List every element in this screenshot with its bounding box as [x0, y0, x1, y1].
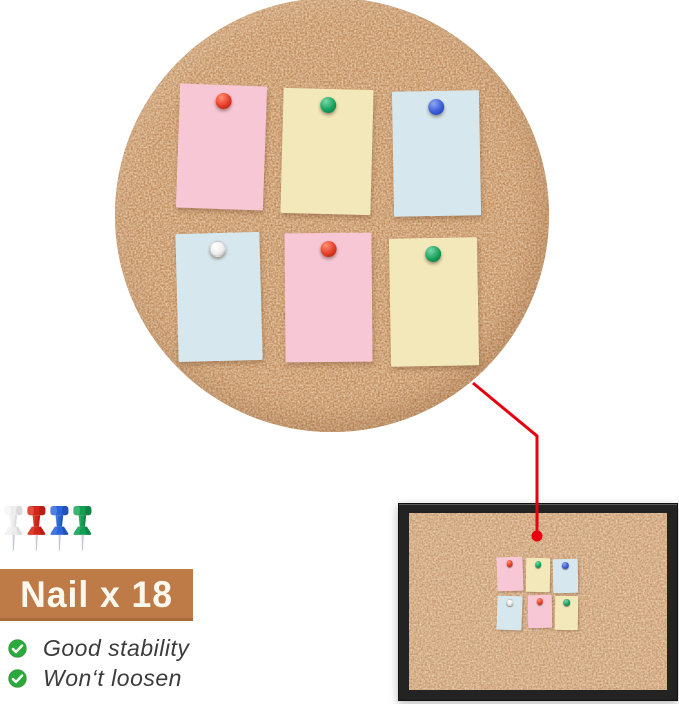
pushpin-green: [320, 97, 336, 113]
board-notes-layer: [409, 513, 667, 690]
pushpin-blue: [428, 99, 444, 115]
sticky-note-blue: [496, 596, 522, 631]
sticky-note-blue: [553, 559, 579, 593]
board-cork-surface: [409, 513, 667, 690]
sticky-note-yellow: [526, 558, 551, 592]
product-image-cork-board: { "banner": { "label": "Nail x 18" }, "c…: [0, 0, 679, 704]
checkmark-icon: [8, 669, 27, 688]
sticky-note-pink: [284, 233, 372, 363]
pushpin-sample-red: [25, 505, 48, 561]
sticky-note-pink: [176, 84, 267, 211]
checkmark-icon: [8, 639, 27, 658]
nail-count-banner: Nail x 18: [0, 569, 193, 621]
pushpin-white: [210, 241, 226, 257]
sticky-note-pink: [528, 595, 553, 628]
pushpin-red: [215, 93, 232, 110]
feature-row: Won‘t loosen: [8, 668, 189, 689]
pushpin-sample-white: [2, 505, 25, 561]
pushpin-green: [563, 599, 570, 606]
pushpin-samples: [2, 505, 94, 561]
sticky-note-yellow: [280, 88, 373, 215]
banner-label: Nail x 18: [20, 574, 173, 616]
pushpin-red: [537, 598, 544, 605]
pushpin-blue: [562, 562, 569, 569]
feature-label: Good stability: [43, 635, 189, 662]
sticky-note-blue: [392, 90, 481, 216]
pushpin-sample-green: [71, 505, 94, 561]
circle-notes-layer: [115, 0, 549, 432]
sticky-note-yellow: [389, 237, 479, 367]
pushpin-green: [425, 246, 441, 262]
sticky-note-pink: [496, 557, 523, 592]
feature-row: Good stability: [8, 638, 189, 659]
feature-checklist: Good stability Won‘t loosen: [8, 638, 189, 689]
feature-label: Won‘t loosen: [43, 665, 182, 692]
pushpin-sample-blue: [48, 505, 71, 561]
sticky-note-blue: [175, 232, 262, 362]
pushpin-red: [320, 241, 336, 257]
framed-cork-board: [398, 503, 678, 701]
pushpin-white: [507, 599, 514, 606]
cork-board-circle-closeup: [115, 0, 549, 432]
pushpin-red: [506, 560, 513, 567]
pushpin-green: [535, 561, 542, 568]
sticky-note-yellow: [555, 596, 579, 630]
